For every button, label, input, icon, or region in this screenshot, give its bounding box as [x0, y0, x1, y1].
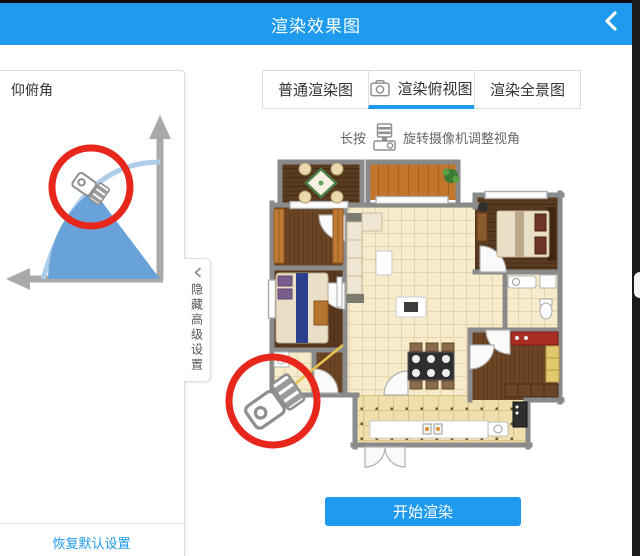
instruction-suffix: 旋转摄像机调整视角	[403, 128, 520, 147]
floorplan-canvas[interactable]	[220, 155, 610, 477]
tab-panorama-render[interactable]: 渲染全景图	[474, 70, 581, 109]
tab-label: 渲染俯视图	[397, 78, 472, 99]
camera-outline-icon	[370, 80, 390, 97]
render-mode-tabs: 普通渲染图 渲染俯视图 渲染全景图	[262, 70, 581, 109]
instruction-prefix: 长按	[340, 128, 366, 147]
back-button[interactable]	[602, 9, 620, 33]
chevron-left-icon	[603, 10, 619, 32]
tab-label: 普通渲染图	[278, 79, 353, 100]
hide-advanced-settings-label: 隐藏高级设置	[189, 283, 206, 373]
restore-defaults-row: 恢复默认设置	[0, 523, 183, 553]
camera-device-icon	[373, 123, 396, 151]
tab-normal-render[interactable]: 普通渲染图	[262, 70, 369, 109]
header-bar: 渲染效果图	[0, 3, 632, 45]
restore-defaults-button[interactable]: 恢复默认设置	[52, 536, 130, 551]
tab-label: 渲染全景图	[490, 79, 565, 100]
pitch-settings-panel: 仰俯角	[0, 70, 185, 556]
long-press-instruction: 长按 旋转摄像机调整视角	[258, 120, 602, 154]
right-edge-notch	[634, 272, 640, 298]
pitch-camera-icon[interactable]	[71, 170, 110, 205]
pitch-angle-diagram[interactable]	[0, 107, 184, 307]
hide-advanced-settings-toggle[interactable]: 隐藏高级设置	[184, 258, 211, 382]
chevron-left-icon	[193, 267, 202, 278]
pitch-wedge	[48, 190, 160, 279]
pitch-angle-label: 仰俯角	[11, 80, 53, 100]
render-effect-screen: 渲染效果图 仰俯角	[0, 0, 640, 556]
tab-top-view-render[interactable]: 渲染俯视图	[368, 70, 475, 109]
page-title: 渲染效果图	[271, 12, 361, 37]
start-render-button[interactable]: 开始渲染	[325, 497, 521, 526]
